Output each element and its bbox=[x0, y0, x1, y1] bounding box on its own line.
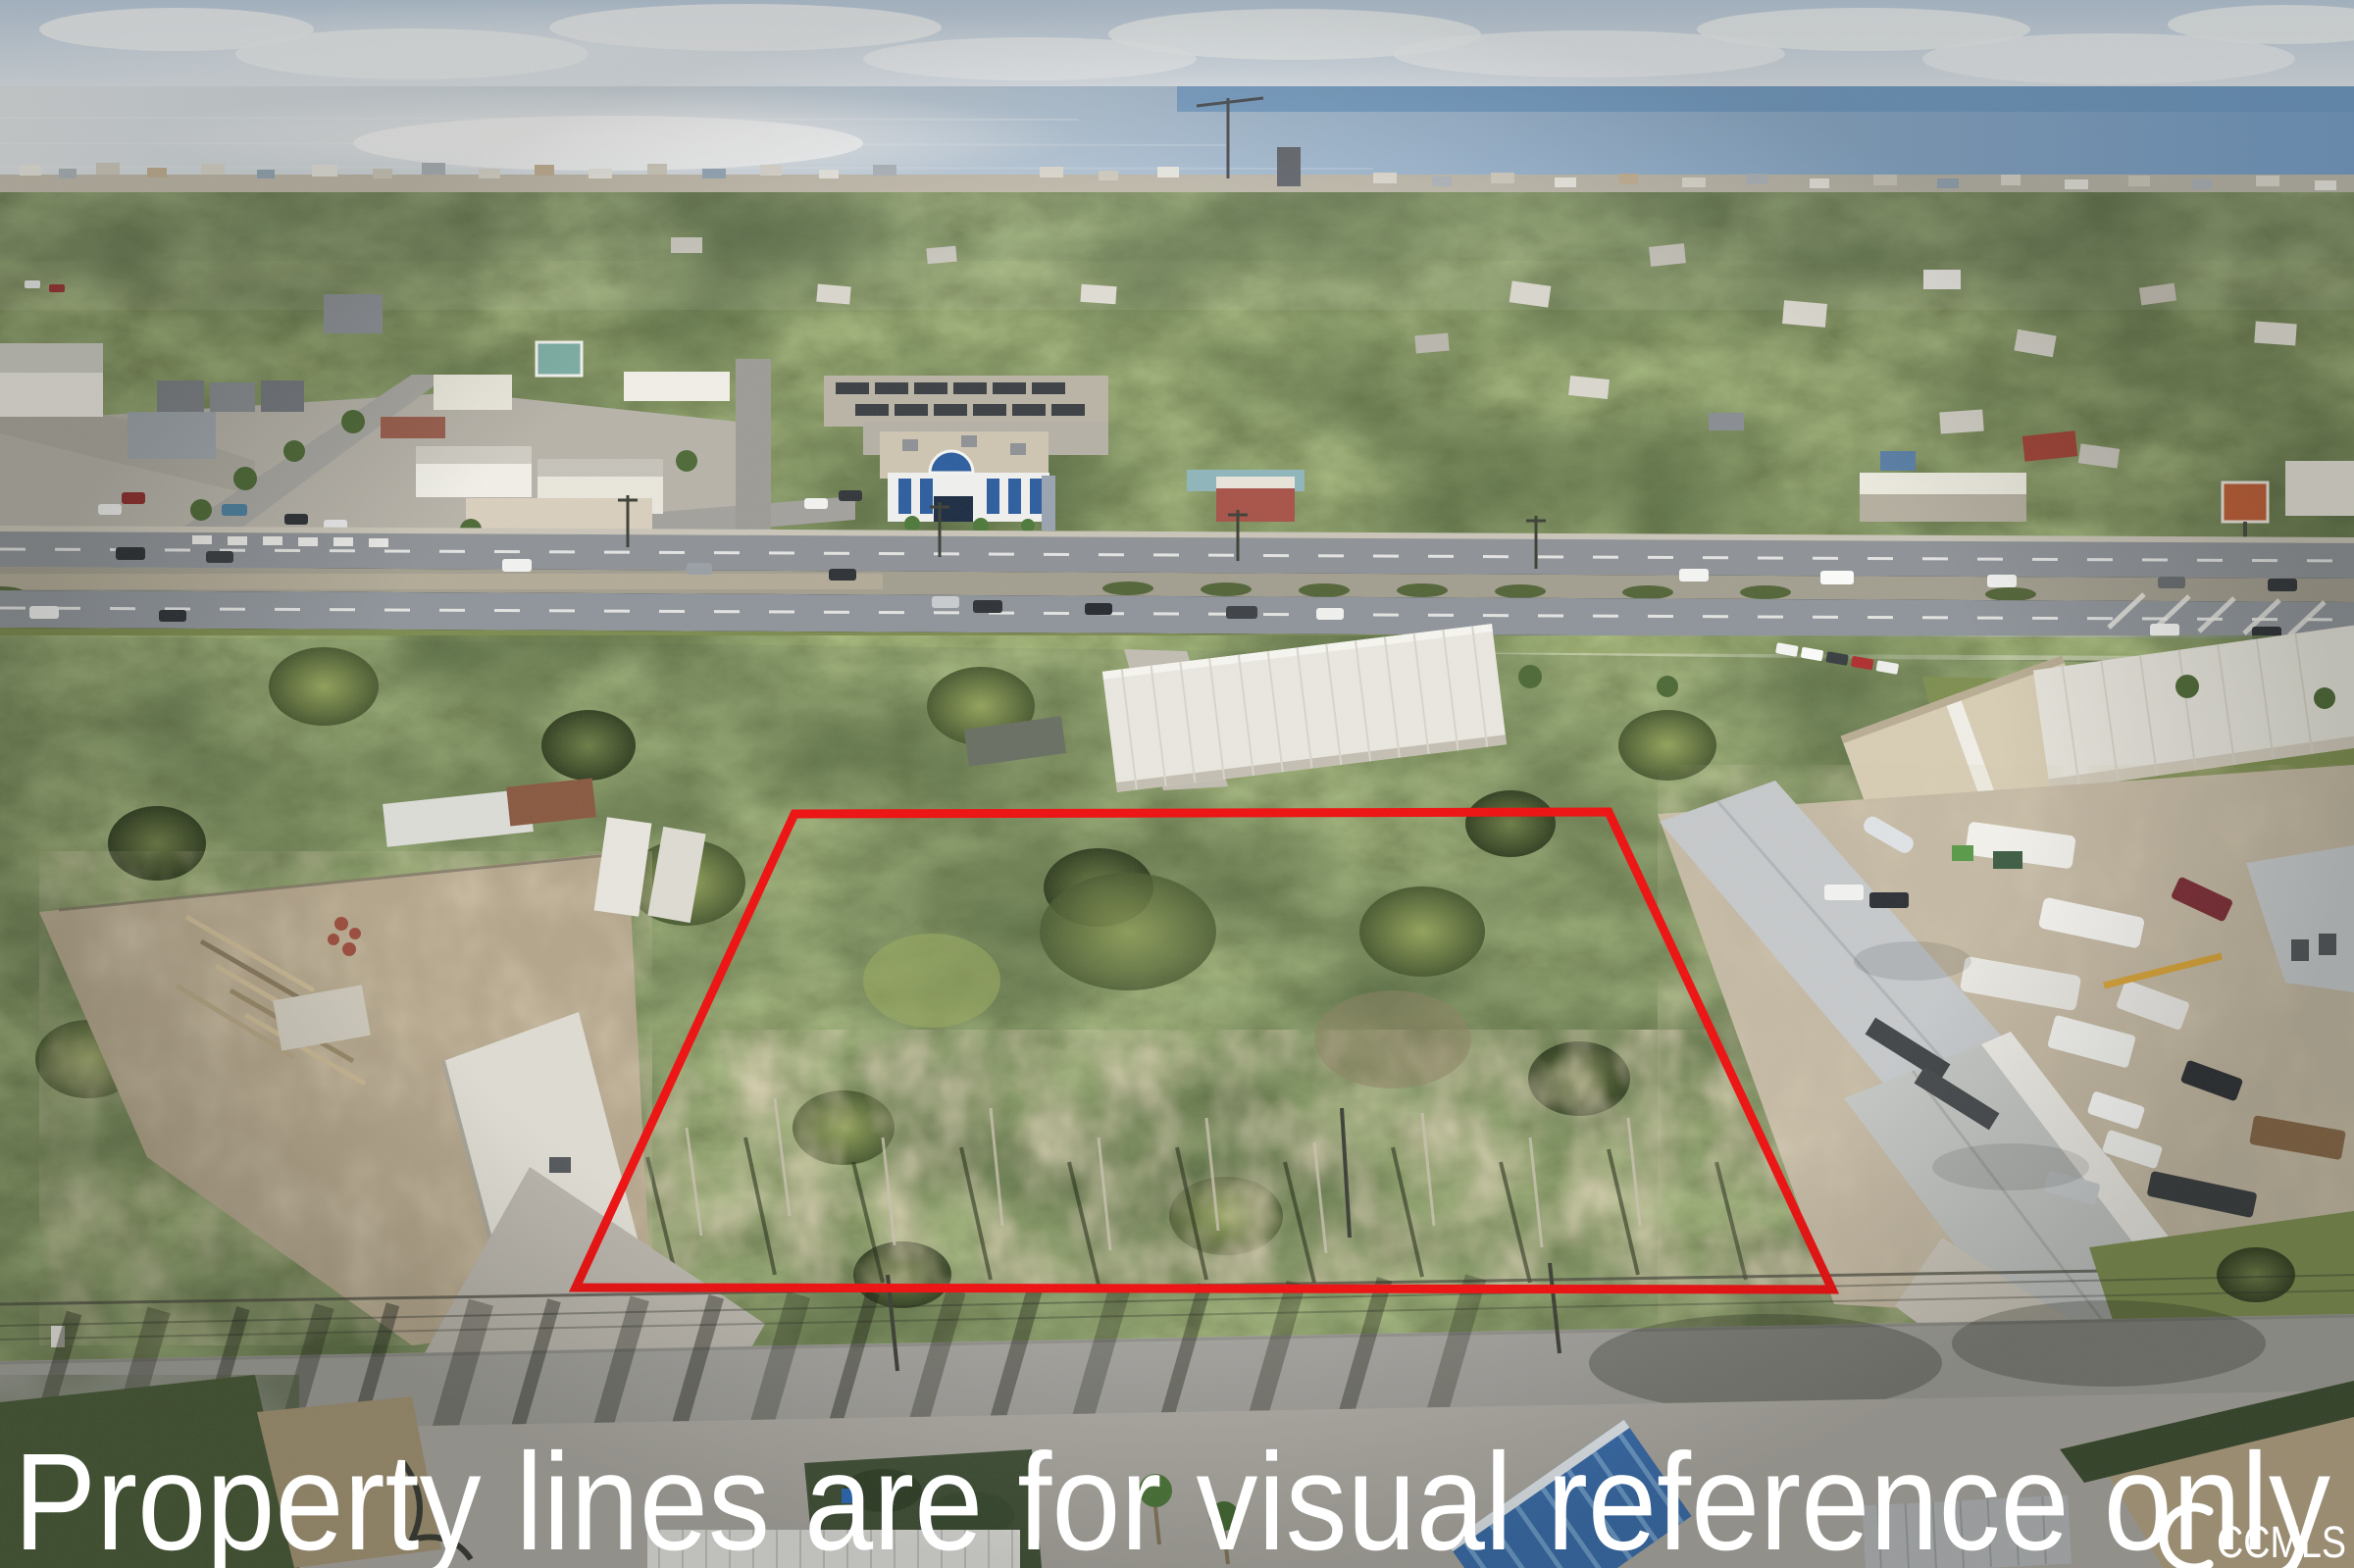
aerial-listing-photo: Property lines are for visual reference … bbox=[0, 0, 2354, 1568]
photo-layers: Property lines are for visual reference … bbox=[0, 0, 2354, 1568]
caption-text: Property lines are for visual reference … bbox=[14, 1424, 2330, 1568]
aerial-photo-canvas: Property lines are for visual reference … bbox=[0, 0, 2354, 1568]
vignette bbox=[0, 0, 2354, 1568]
ccmls-logo-text: CCMLS bbox=[2217, 1517, 2346, 1567]
